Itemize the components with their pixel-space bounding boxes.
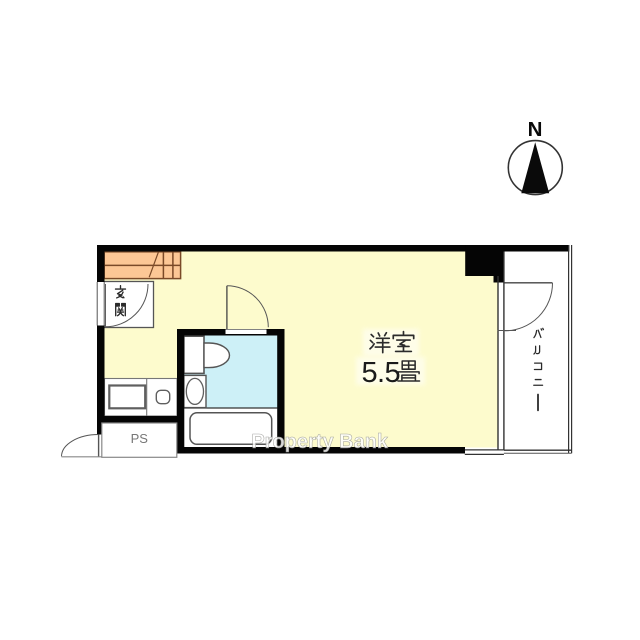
svg-text:5.5: 5.5: [362, 357, 401, 389]
svg-text:N: N: [528, 118, 543, 141]
svg-text:Property Bank: Property Bank: [251, 431, 389, 453]
svg-text:PS: PS: [131, 431, 149, 446]
